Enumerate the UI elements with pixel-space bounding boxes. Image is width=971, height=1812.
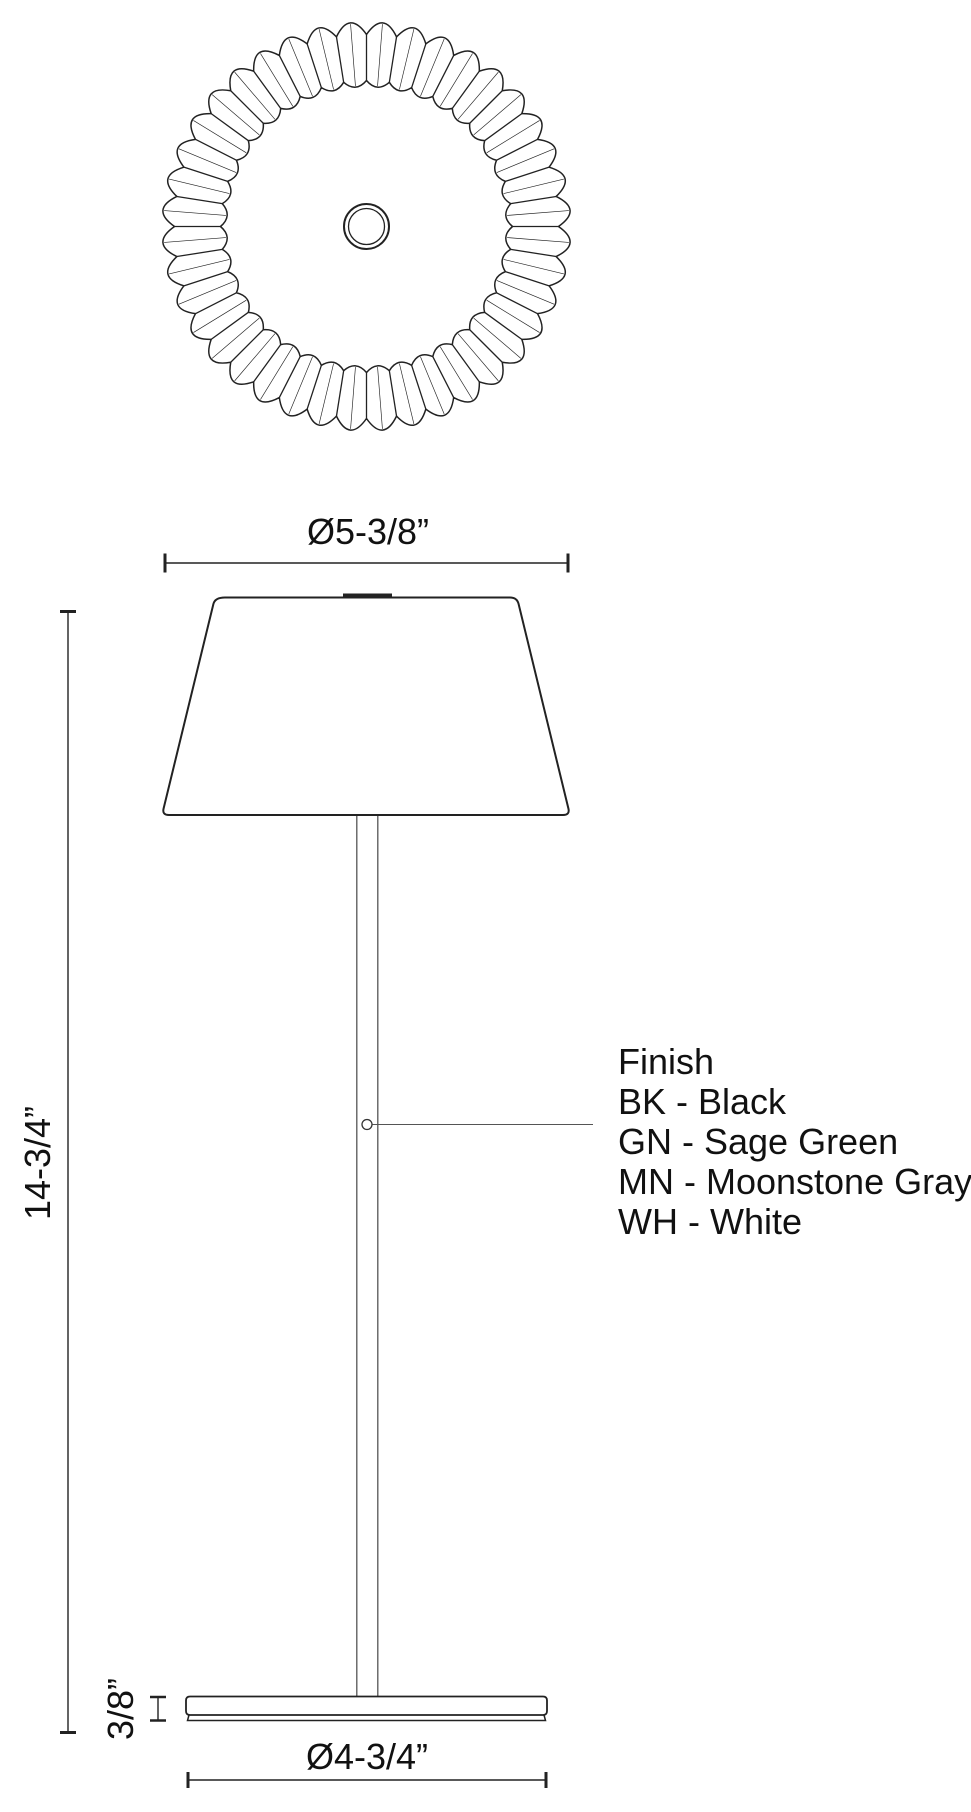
flute-mid-line <box>487 300 540 332</box>
flute-mid-line <box>164 211 226 216</box>
top-view-drawing <box>163 23 570 430</box>
flute-boundary-line <box>511 249 556 256</box>
flute-boundary-line <box>336 37 343 82</box>
flute-mid-line <box>507 211 569 216</box>
flute-boundary-line <box>254 71 281 108</box>
line-drawing-svg <box>0 0 971 1812</box>
flute-boundary-line <box>231 330 264 363</box>
finish-option-mn: MN - Moonstone Gray <box>618 1162 971 1202</box>
flute-boundary-line <box>505 167 549 181</box>
flute-mid-line <box>504 259 564 273</box>
flute-boundary-line <box>452 71 479 108</box>
flute-boundary-line <box>177 249 222 256</box>
flute-mid-line <box>193 300 246 332</box>
flute-mid-line <box>474 318 521 358</box>
finish-option-wh: WH - White <box>618 1202 971 1242</box>
flute-mid-line <box>507 238 569 243</box>
flute-mid-line <box>440 53 472 106</box>
overall-height-label: 14-3/4” <box>20 1106 56 1220</box>
shade-diameter-label: Ø5-3/8” <box>307 514 429 550</box>
finish-legend-title: Finish <box>618 1042 971 1082</box>
flute-boundary-line <box>412 365 426 409</box>
flute-boundary-line <box>307 365 321 409</box>
base-thickness-label: 3/8” <box>103 1678 139 1740</box>
flute-boundary-line <box>211 312 248 339</box>
flute-boundary-line <box>433 357 454 398</box>
flute-boundary-line <box>470 91 503 124</box>
flute-mid-line <box>378 367 383 429</box>
dimension-lines <box>60 554 568 1789</box>
flute-boundary-line <box>452 345 479 382</box>
lamp-dimension-drawing: Ø5-3/8” 14-3/4” 3/8” Ø4-3/4” Finish BK -… <box>0 0 971 1812</box>
center-hole-inner-ring <box>349 209 385 245</box>
flute-boundary-line <box>231 91 264 124</box>
flute-boundary-line <box>412 44 426 88</box>
flute-boundary-line <box>485 114 522 141</box>
base-diameter-label: Ø4-3/4” <box>306 1739 428 1775</box>
flute-mid-line <box>260 53 292 106</box>
flute-boundary-line <box>497 293 538 314</box>
flute-mid-line <box>440 347 472 400</box>
finish-option-gn: GN - Sage Green <box>618 1122 971 1162</box>
finish-leader <box>362 1120 593 1130</box>
finish-legend: Finish BK - Black GN - Sage Green MN - M… <box>618 1042 971 1242</box>
shade-inner-scalloped-edge <box>221 81 513 373</box>
flute-boundary-line <box>336 371 343 416</box>
flute-mid-line <box>378 24 383 86</box>
flute-mid-line <box>193 120 246 152</box>
flute-mid-line <box>504 179 564 193</box>
flute-mid-line <box>169 179 229 193</box>
flute-mid-line <box>319 364 333 424</box>
center-hole-outer-ring <box>344 204 389 249</box>
flute-boundary-line <box>177 196 222 203</box>
flute-boundary-line <box>279 55 300 96</box>
flute-mid-line <box>235 334 275 381</box>
flute-mid-line <box>474 95 521 135</box>
flute-boundary-line <box>307 44 321 88</box>
flute-mid-line <box>458 334 498 381</box>
flute-boundary-line <box>485 312 522 339</box>
flute-mid-line <box>458 72 498 119</box>
flute-mid-line <box>351 367 356 429</box>
flute-mid-line <box>399 364 413 424</box>
flute-boundary-line <box>195 293 236 314</box>
flute-mid-line <box>212 318 259 358</box>
flute-boundary-line <box>184 272 228 286</box>
leader-circle <box>362 1120 372 1130</box>
flute-boundary-line <box>389 37 396 82</box>
flute-mid-line <box>351 24 356 86</box>
flute-mid-line <box>169 259 229 273</box>
flute-boundary-line <box>184 167 228 181</box>
flute-boundary-line <box>211 114 248 141</box>
flute-boundary-line <box>433 55 454 96</box>
flute-boundary-line <box>497 139 538 160</box>
flute-boundary-line <box>389 371 396 416</box>
flute-boundary-line <box>195 139 236 160</box>
flute-boundary-line <box>470 330 503 363</box>
shade-outer-scalloped-edge <box>163 23 570 430</box>
front-view-drawing <box>163 596 568 1721</box>
flute-boundary-line <box>254 345 281 382</box>
flute-mid-line <box>399 29 413 89</box>
flute-mid-line <box>319 29 333 89</box>
flute-boundary-line <box>511 196 556 203</box>
shade-outline <box>163 598 568 816</box>
base-outline <box>186 1697 547 1716</box>
finish-option-bk: BK - Black <box>618 1082 971 1122</box>
flute-boundary-line <box>505 272 549 286</box>
flute-mid-line <box>260 347 292 400</box>
flute-mid-line <box>212 95 259 135</box>
flute-boundary-line <box>279 357 300 398</box>
flute-mid-line <box>235 72 275 119</box>
flute-mid-line <box>164 238 226 243</box>
flute-mid-line <box>487 120 540 152</box>
